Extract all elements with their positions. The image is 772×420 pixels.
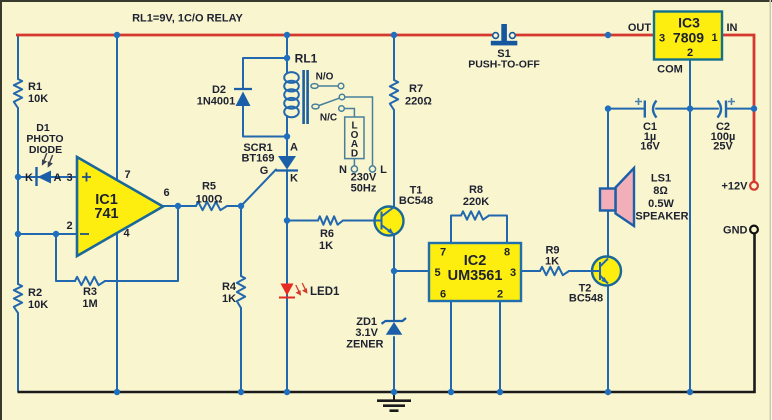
svg-text:3.1V: 3.1V (355, 327, 378, 339)
svg-text:D: D (351, 148, 358, 159)
svg-text:+12V: +12V (722, 181, 749, 193)
svg-text:1M: 1M (82, 298, 97, 310)
svg-text:2: 2 (497, 289, 503, 301)
svg-text:IN: IN (727, 22, 738, 34)
svg-text:2: 2 (66, 220, 72, 232)
svg-text:LED1: LED1 (310, 286, 340, 298)
svg-text:D2: D2 (212, 84, 226, 96)
svg-text:N/C: N/C (320, 113, 337, 124)
svg-text:A: A (54, 172, 62, 184)
svg-text:3: 3 (66, 172, 72, 184)
svg-text:1N4001: 1N4001 (197, 96, 236, 108)
svg-text:1K: 1K (545, 256, 559, 268)
svg-text:R2: R2 (28, 287, 42, 299)
svg-text:OUT: OUT (628, 22, 652, 34)
svg-text:220K: 220K (463, 196, 489, 208)
svg-text:2: 2 (687, 47, 693, 59)
svg-text:1K: 1K (319, 240, 333, 252)
svg-text:R8: R8 (469, 184, 483, 196)
svg-text:N: N (339, 164, 347, 176)
svg-text:6: 6 (163, 187, 169, 199)
svg-text:741: 741 (94, 206, 118, 222)
svg-text:BC548: BC548 (399, 195, 433, 207)
svg-text:L: L (380, 164, 387, 176)
svg-text:K: K (290, 173, 298, 185)
svg-text:UM3561: UM3561 (448, 268, 503, 284)
svg-text:100Ω: 100Ω (196, 194, 223, 206)
svg-text:6: 6 (440, 289, 446, 301)
svg-text:0.5W: 0.5W (648, 198, 674, 210)
svg-text:3: 3 (659, 33, 665, 45)
svg-text:1: 1 (711, 32, 717, 44)
svg-text:220Ω: 220Ω (405, 96, 432, 108)
svg-text:1K: 1K (222, 293, 236, 305)
svg-text:COM: COM (657, 64, 683, 76)
svg-text:LS1: LS1 (651, 173, 671, 185)
svg-text:3: 3 (510, 267, 516, 279)
svg-text:BC548: BC548 (569, 293, 603, 305)
svg-text:ZENER: ZENER (346, 339, 383, 351)
svg-text:PUSH-TO-OFF: PUSH-TO-OFF (468, 59, 540, 71)
svg-text:RL1: RL1 (295, 52, 318, 66)
svg-text:K: K (25, 172, 33, 184)
svg-text:IC2: IC2 (464, 253, 487, 269)
svg-text:R4: R4 (222, 281, 237, 293)
svg-text:25V: 25V (713, 141, 733, 153)
svg-text:4: 4 (123, 228, 130, 240)
svg-text:BT169: BT169 (241, 153, 274, 165)
svg-text:50Hz: 50Hz (351, 183, 377, 195)
svg-text:7: 7 (124, 169, 130, 181)
svg-text:10K: 10K (28, 299, 48, 311)
svg-text:A: A (290, 142, 298, 154)
svg-text:RL1=9V, 1C/O RELAY: RL1=9V, 1C/O RELAY (132, 13, 243, 25)
svg-text:IC3: IC3 (678, 15, 700, 31)
svg-text:SPEAKER: SPEAKER (635, 211, 688, 223)
svg-text:10K: 10K (28, 93, 48, 105)
svg-text:R7: R7 (409, 83, 423, 95)
svg-text:DIODE: DIODE (29, 144, 62, 156)
svg-text:R6: R6 (320, 228, 334, 240)
svg-text:R3: R3 (83, 286, 97, 298)
svg-text:8: 8 (504, 247, 510, 259)
svg-text:7809: 7809 (673, 30, 704, 46)
svg-text:R1: R1 (28, 81, 42, 93)
svg-text:GND: GND (723, 225, 748, 237)
svg-text:7: 7 (440, 247, 446, 259)
svg-text:N/O: N/O (316, 72, 334, 83)
svg-text:G: G (260, 165, 269, 177)
svg-text:5: 5 (434, 267, 440, 279)
svg-text:R5: R5 (202, 181, 216, 193)
svg-text:8Ω: 8Ω (653, 185, 668, 197)
svg-text:16V: 16V (640, 141, 660, 153)
